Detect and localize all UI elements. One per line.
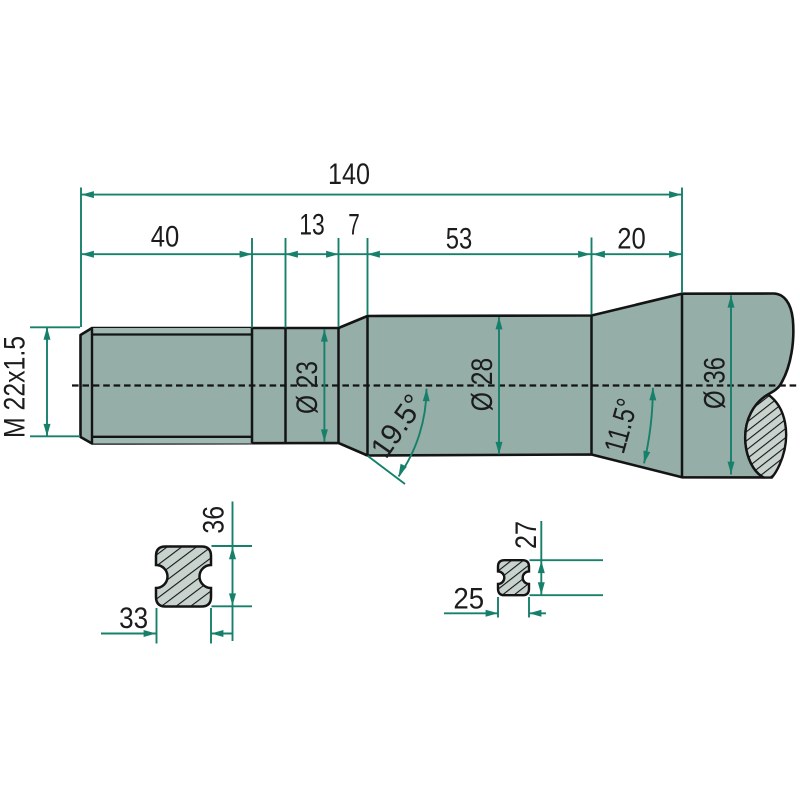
svg-text:13: 13	[299, 209, 325, 242]
svg-text:27: 27	[510, 521, 543, 549]
svg-text:Ø 28: Ø 28	[466, 358, 499, 412]
svg-text:53: 53	[446, 223, 473, 256]
svg-text:36: 36	[198, 506, 231, 534]
svg-text:Ø 23: Ø 23	[291, 361, 324, 414]
svg-text:7: 7	[348, 209, 360, 242]
svg-text:Ø 36: Ø 36	[699, 357, 732, 409]
svg-text:40: 40	[151, 221, 180, 254]
svg-text:33: 33	[119, 602, 148, 635]
svg-text:25: 25	[453, 583, 484, 616]
svg-text:20: 20	[617, 223, 646, 256]
svg-text:M 22x1.5: M 22x1.5	[0, 336, 32, 438]
svg-text:140: 140	[328, 158, 370, 191]
